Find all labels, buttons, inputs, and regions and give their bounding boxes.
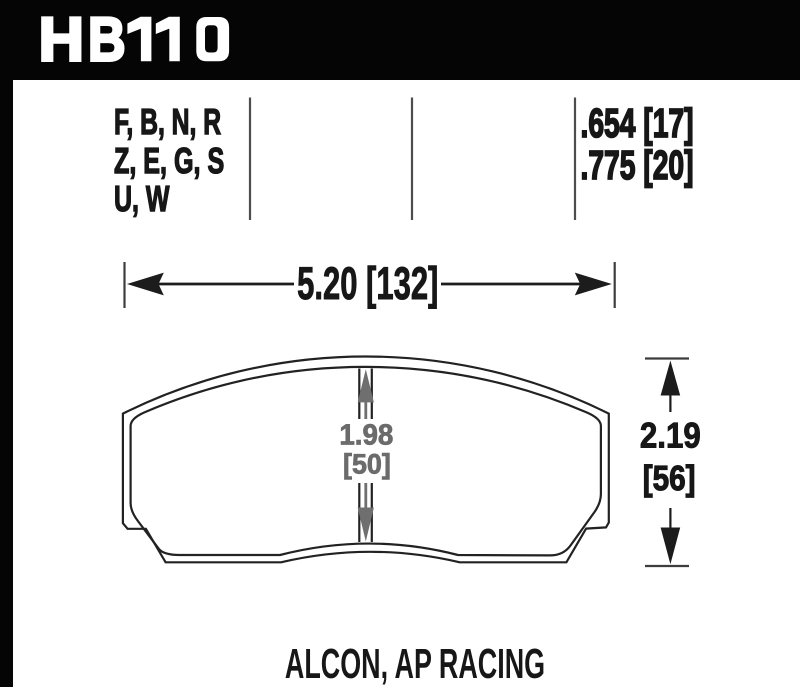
- svg-text:F, B, N, R: F, B, N, R: [114, 101, 221, 142]
- svg-text:ALCON, AP RACING: ALCON, AP RACING: [285, 640, 545, 687]
- svg-text:2.19: 2.19: [640, 416, 701, 456]
- svg-text:.775 [20]: .775 [20]: [581, 142, 694, 188]
- svg-text:B: B: [88, 6, 126, 75]
- svg-text:U, W: U, W: [114, 178, 170, 219]
- svg-text:.654 [17]: .654 [17]: [581, 100, 694, 146]
- svg-text:1.98: 1.98: [339, 419, 393, 451]
- svg-text:Z, E, G, S: Z, E, G, S: [114, 140, 224, 181]
- svg-text:5.20 [132]: 5.20 [132]: [297, 257, 438, 309]
- svg-text:[50]: [50]: [343, 449, 391, 480]
- svg-text:[56]: [56]: [643, 459, 696, 498]
- svg-text:H: H: [39, 6, 85, 75]
